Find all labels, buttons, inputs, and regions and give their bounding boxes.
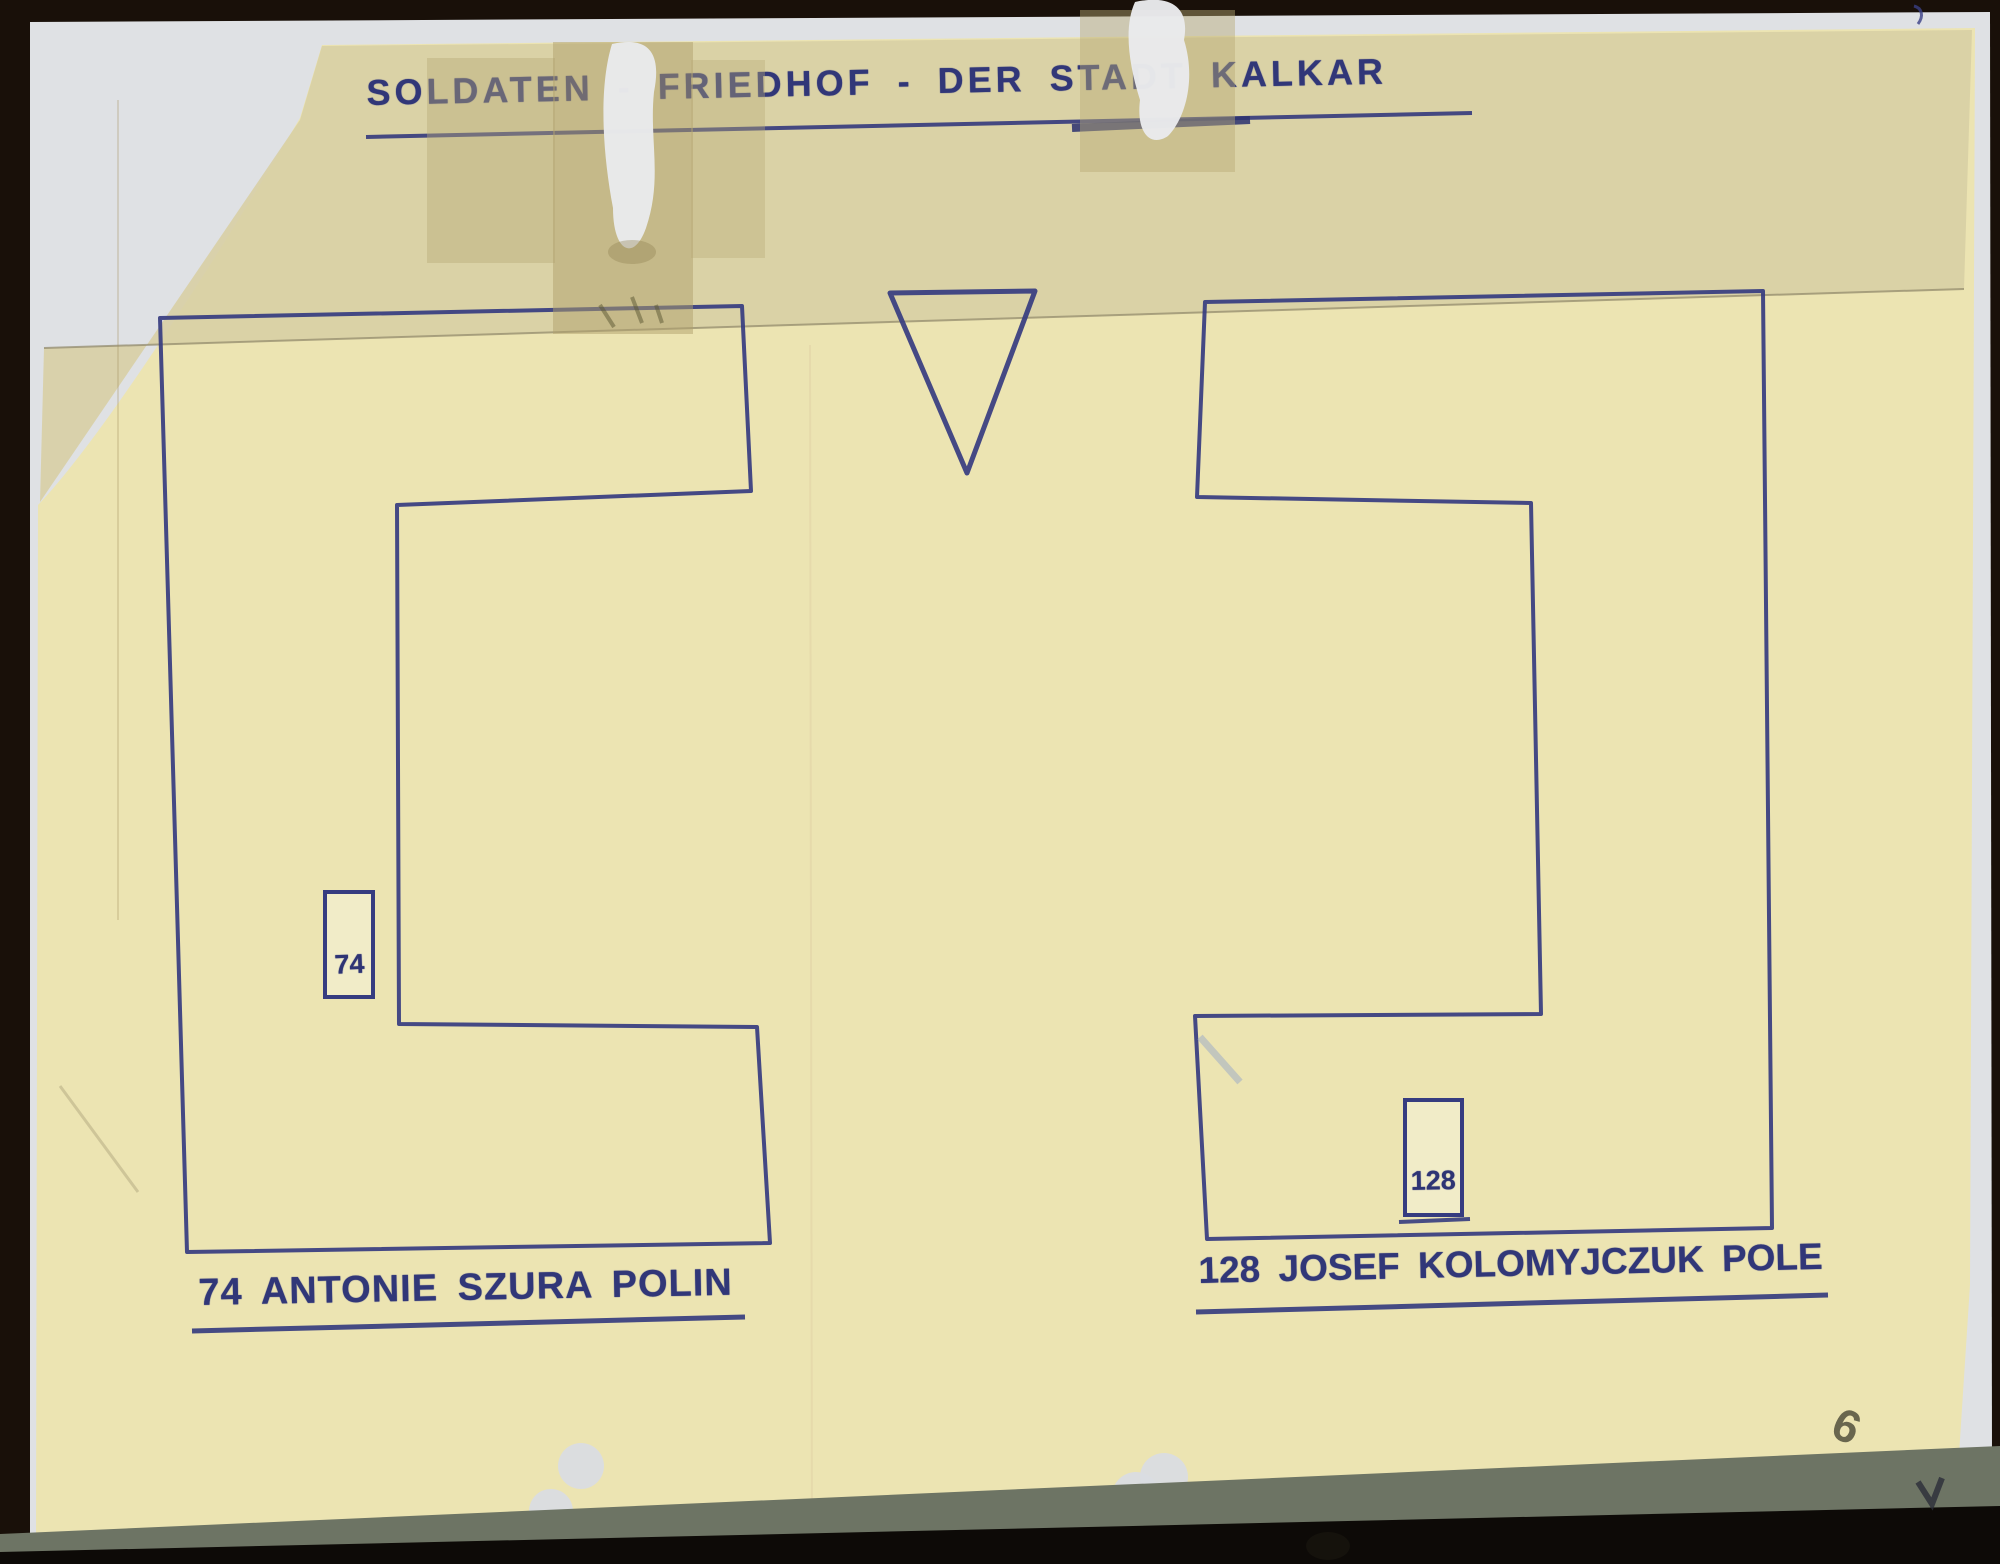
page-title: SOLDATEN - FRIEDHOF - DER STADT KALKAR	[366, 51, 1387, 114]
grave-74-number: 74	[326, 948, 373, 981]
grave-128-box	[1405, 1100, 1462, 1215]
tape-residue-specks	[600, 297, 662, 327]
paper-crease	[60, 1086, 138, 1192]
scan-bottom-edge	[0, 1506, 2000, 1564]
white-dot	[1140, 1453, 1188, 1501]
grave-74-box	[325, 892, 373, 997]
left-label-underline	[192, 1317, 745, 1331]
triangle-symbol	[890, 291, 1035, 473]
left-plot-label: 74 ANTONIE SZURA POLIN	[198, 1262, 733, 1315]
right-plot-label: 128 JOSEF KOLOMYJCZUK POLE	[1198, 1236, 1823, 1292]
paper-crease	[810, 345, 812, 1540]
tracing-paper	[36, 28, 1975, 1542]
pencil-number-annotation: 6	[1824, 1396, 1869, 1456]
scanner-bed-shadow	[0, 1446, 2000, 1564]
dark-mark	[1918, 1478, 1942, 1504]
white-dot	[1112, 1472, 1160, 1520]
left-plot-outline	[160, 306, 770, 1252]
paper-artwork-layer	[0, 0, 2000, 1564]
grave-128-number: 128	[1404, 1165, 1463, 1197]
tape-residue	[608, 240, 656, 264]
white-dot	[558, 1443, 604, 1489]
title-underline	[366, 113, 1472, 137]
scanned-page: SOLDATEN - FRIEDHOF - DER STADT KALKAR 7…	[0, 0, 2000, 1564]
right-plot-outline	[1195, 291, 1772, 1239]
right-label-underline	[1196, 1295, 1828, 1312]
overlay-artwork-layer	[0, 0, 2000, 1564]
grave-128-box-underline	[1399, 1219, 1470, 1222]
white-dot	[529, 1489, 573, 1533]
paper-top-band	[40, 30, 1972, 502]
corner-pen-mark	[1914, 6, 1921, 24]
sheet-overlap-edge	[44, 289, 1964, 348]
blue-smudge	[1200, 1037, 1240, 1082]
title-underline-heavy	[1072, 120, 1250, 128]
dark-blotch	[1306, 1532, 1350, 1560]
